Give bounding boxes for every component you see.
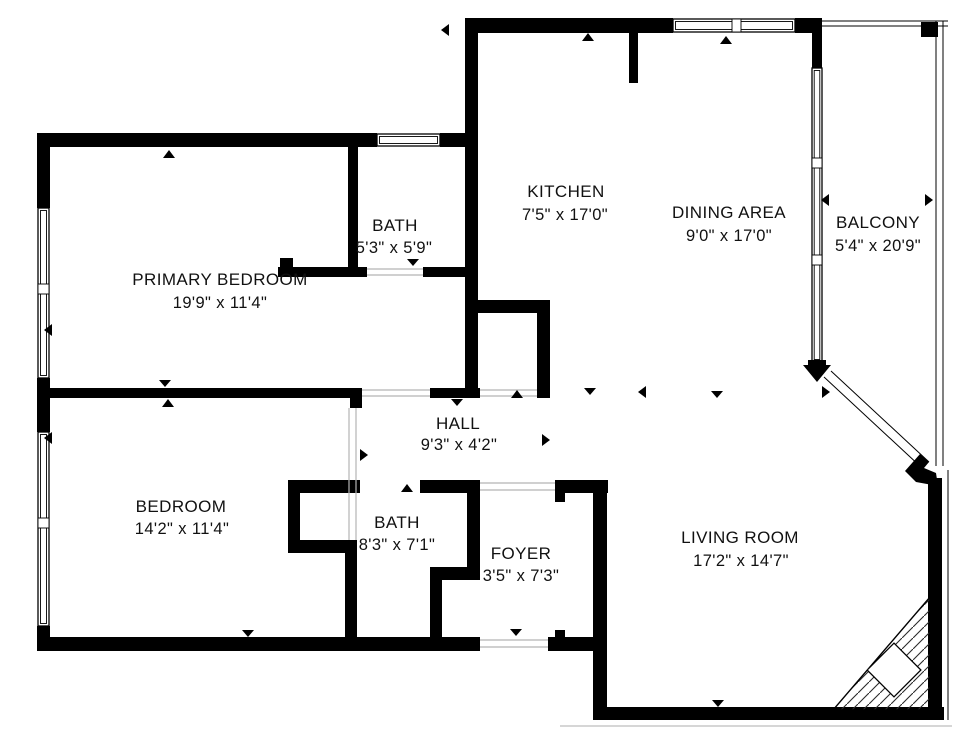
door-marker-icon bbox=[242, 630, 254, 637]
primary-bedroom-dims: 19'9" x 11'4" bbox=[173, 294, 267, 312]
living-room-label: LIVING ROOM bbox=[681, 528, 799, 547]
primary-bedroom-label: PRIMARY BEDROOM bbox=[132, 270, 307, 289]
window-icon bbox=[377, 134, 440, 146]
diagonal-opening bbox=[803, 360, 938, 486]
door-marker-icon bbox=[441, 24, 449, 36]
window-icon bbox=[673, 19, 795, 32]
door-marker-icon bbox=[159, 380, 171, 387]
door-marker-icon bbox=[712, 700, 724, 707]
foyer-label: FOYER bbox=[491, 544, 552, 563]
bath-lower-dims: 8'3" x 7'1" bbox=[359, 536, 436, 554]
hall-label: HALL bbox=[436, 414, 480, 433]
balcony-label: BALCONY bbox=[836, 213, 920, 232]
window-icon bbox=[38, 208, 49, 378]
kitchen-label: KITCHEN bbox=[527, 182, 604, 201]
hall-dims: 9'3" x 4'2" bbox=[421, 436, 498, 454]
room-labels: KITCHEN 7'5" x 17'0" DINING AREA 9'0" x … bbox=[132, 182, 921, 585]
door-marker-icon bbox=[360, 449, 368, 461]
dining-area-label: DINING AREA bbox=[672, 203, 786, 222]
door-marker-icon bbox=[638, 386, 646, 398]
door-marker-icon bbox=[163, 150, 175, 158]
foyer-dims: 3'5" x 7'3" bbox=[483, 567, 560, 585]
door-marker-icon bbox=[584, 388, 596, 395]
door-marker-icon bbox=[510, 629, 522, 636]
door-marker-icon bbox=[401, 484, 413, 492]
corner-hatch-decoration bbox=[833, 597, 930, 710]
living-room-dims: 17'2" x 14'7" bbox=[693, 552, 789, 570]
bath-upper-label: BATH bbox=[372, 216, 418, 235]
door-marker-icon bbox=[511, 390, 523, 398]
balcony-dims: 5'4" x 20'9" bbox=[835, 237, 921, 255]
bedroom-label: BEDROOM bbox=[136, 497, 227, 516]
door-marker-icon bbox=[407, 259, 419, 266]
door-marker-icon bbox=[162, 399, 174, 407]
door-marker-icon bbox=[720, 36, 732, 44]
door-thresholds bbox=[349, 269, 555, 647]
floor-plan: KITCHEN 7'5" x 17'0" DINING AREA 9'0" x … bbox=[0, 0, 960, 734]
dining-area-dims: 9'0" x 17'0" bbox=[686, 227, 772, 245]
window-icon bbox=[812, 68, 822, 362]
bath-lower-label: BATH bbox=[374, 513, 420, 532]
door-marker-icon bbox=[822, 386, 830, 398]
window-icon bbox=[38, 432, 49, 626]
door-marker-icon bbox=[542, 434, 550, 446]
kitchen-dims: 7'5" x 17'0" bbox=[522, 206, 608, 224]
opening-arrow-icon bbox=[905, 454, 938, 486]
opening-arrow-icon bbox=[803, 360, 831, 382]
door-marker-icon bbox=[451, 399, 463, 406]
bedroom-dims: 14'2" x 11'4" bbox=[135, 520, 229, 538]
door-markers bbox=[44, 24, 933, 707]
door-marker-icon bbox=[582, 33, 594, 41]
bath-upper-dims: 5'3" x 5'9" bbox=[356, 239, 433, 257]
door-marker-icon bbox=[711, 391, 723, 398]
door-marker-icon bbox=[925, 194, 933, 206]
